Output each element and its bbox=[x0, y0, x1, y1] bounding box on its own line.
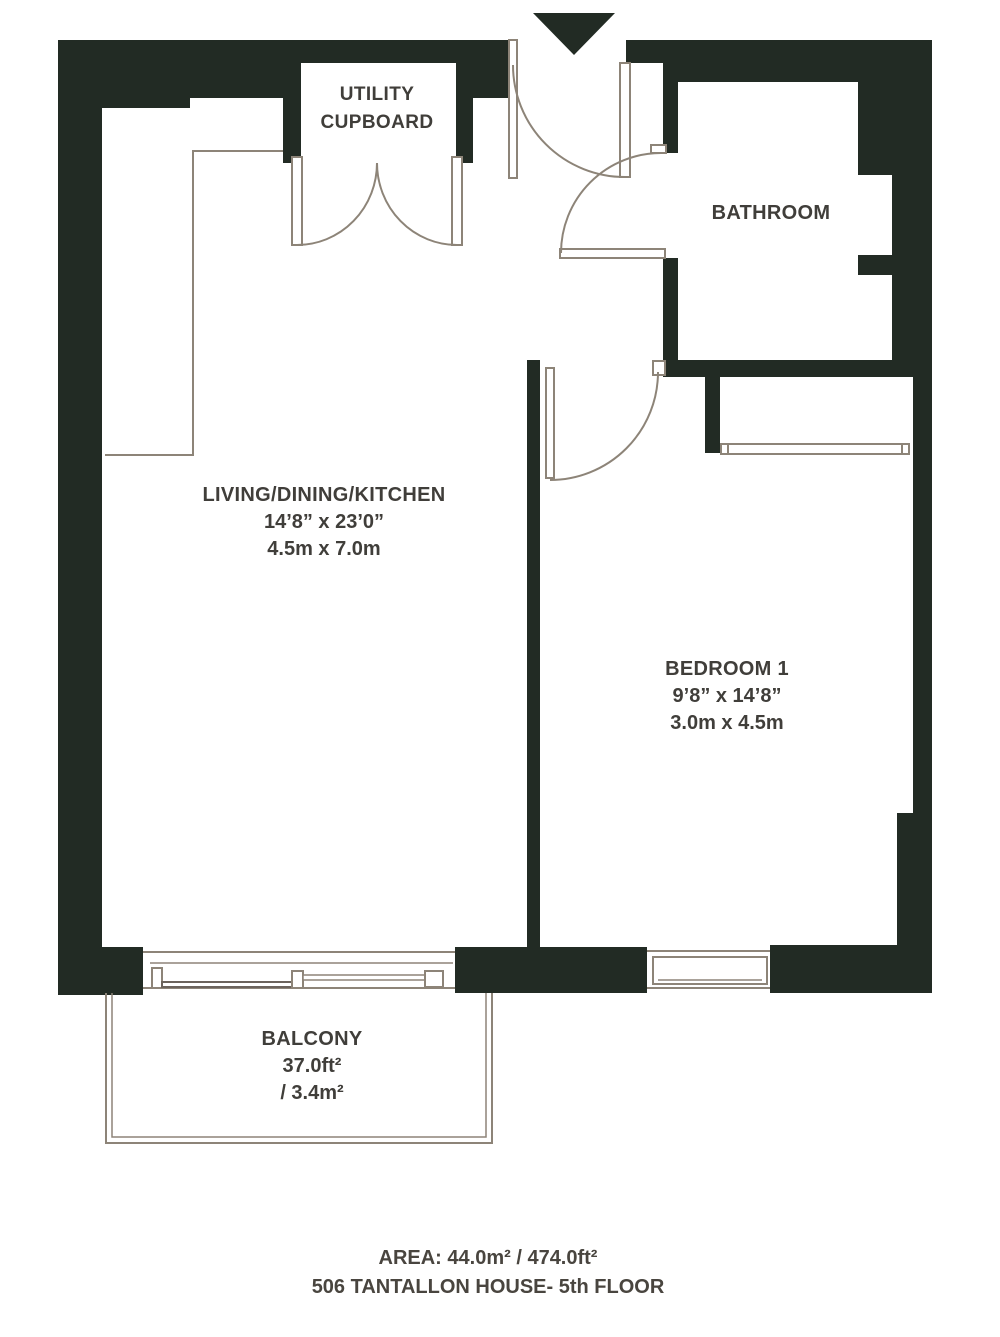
balcony-area-imperial: 37.0ft² bbox=[187, 1053, 437, 1080]
cupboard-door-leaf-right bbox=[452, 157, 462, 245]
living-room-name: LIVING/DINING/KITCHEN bbox=[174, 482, 474, 509]
utility-cupboard-label-line1: UTILITY bbox=[277, 81, 477, 109]
cupboard-door-swing-right bbox=[377, 163, 457, 245]
bedroom-jamb-cap bbox=[653, 361, 665, 375]
cupboard-door-swing-left bbox=[297, 163, 377, 245]
bathroom-door-swing bbox=[561, 153, 661, 253]
slider-bracket-right bbox=[425, 971, 443, 987]
entrance-arrow-icon bbox=[533, 13, 615, 55]
bedroom-label: BEDROOM 1 9’8” x 14’8” 3.0m x 4.5m bbox=[577, 656, 877, 737]
bedroom-door-swing bbox=[550, 372, 658, 480]
living-room-dims-imperial: 14’8” x 23’0” bbox=[174, 509, 474, 536]
bathroom-label-text: BATHROOM bbox=[671, 200, 871, 227]
living-room-label: LIVING/DINING/KITCHEN 14’8” x 23’0” 4.5m… bbox=[174, 482, 474, 563]
footer-area-text: AREA: 44.0m² / 474.0ft² bbox=[238, 1244, 738, 1273]
floor-plan: UTILITY CUPBOARD BATHROOM LIVING/DINING/… bbox=[0, 0, 1000, 1337]
utility-cupboard-label-line2: CUPBOARD bbox=[277, 109, 477, 137]
balcony-label: BALCONY 37.0ft² / 3.4m² bbox=[187, 1026, 437, 1107]
entry-jamb-lining bbox=[509, 40, 517, 178]
slider-panel-inner bbox=[303, 975, 425, 980]
utility-cupboard-label: UTILITY CUPBOARD bbox=[277, 81, 477, 137]
wardrobe-front-line bbox=[721, 444, 909, 454]
balcony-area-metric: / 3.4m² bbox=[187, 1080, 437, 1107]
bathroom-label: BATHROOM bbox=[671, 200, 871, 227]
bathroom-jamb-cap bbox=[651, 145, 666, 153]
entry-door-swing bbox=[513, 65, 625, 177]
plan-footer: AREA: 44.0m² / 474.0ft² 506 TANTALLON HO… bbox=[238, 1244, 738, 1302]
slider-panel-outer bbox=[162, 982, 292, 987]
bedroom-door-leaf bbox=[546, 368, 554, 478]
slider-center-mullion bbox=[292, 971, 303, 988]
footer-address-text: 506 TANTALLON HOUSE- 5th FLOOR bbox=[238, 1273, 738, 1302]
living-room-dims-metric: 4.5m x 7.0m bbox=[174, 536, 474, 563]
slider-bracket-left bbox=[152, 968, 162, 988]
bedroom-name: BEDROOM 1 bbox=[577, 656, 877, 683]
bathroom-door-leaf bbox=[560, 249, 665, 258]
bedroom-dims-metric: 3.0m x 4.5m bbox=[577, 710, 877, 737]
bedroom-dims-imperial: 9’8” x 14’8” bbox=[577, 683, 877, 710]
balcony-name: BALCONY bbox=[187, 1026, 437, 1053]
cupboard-door-leaf-left bbox=[292, 157, 302, 245]
kitchen-counter-line bbox=[105, 151, 283, 455]
